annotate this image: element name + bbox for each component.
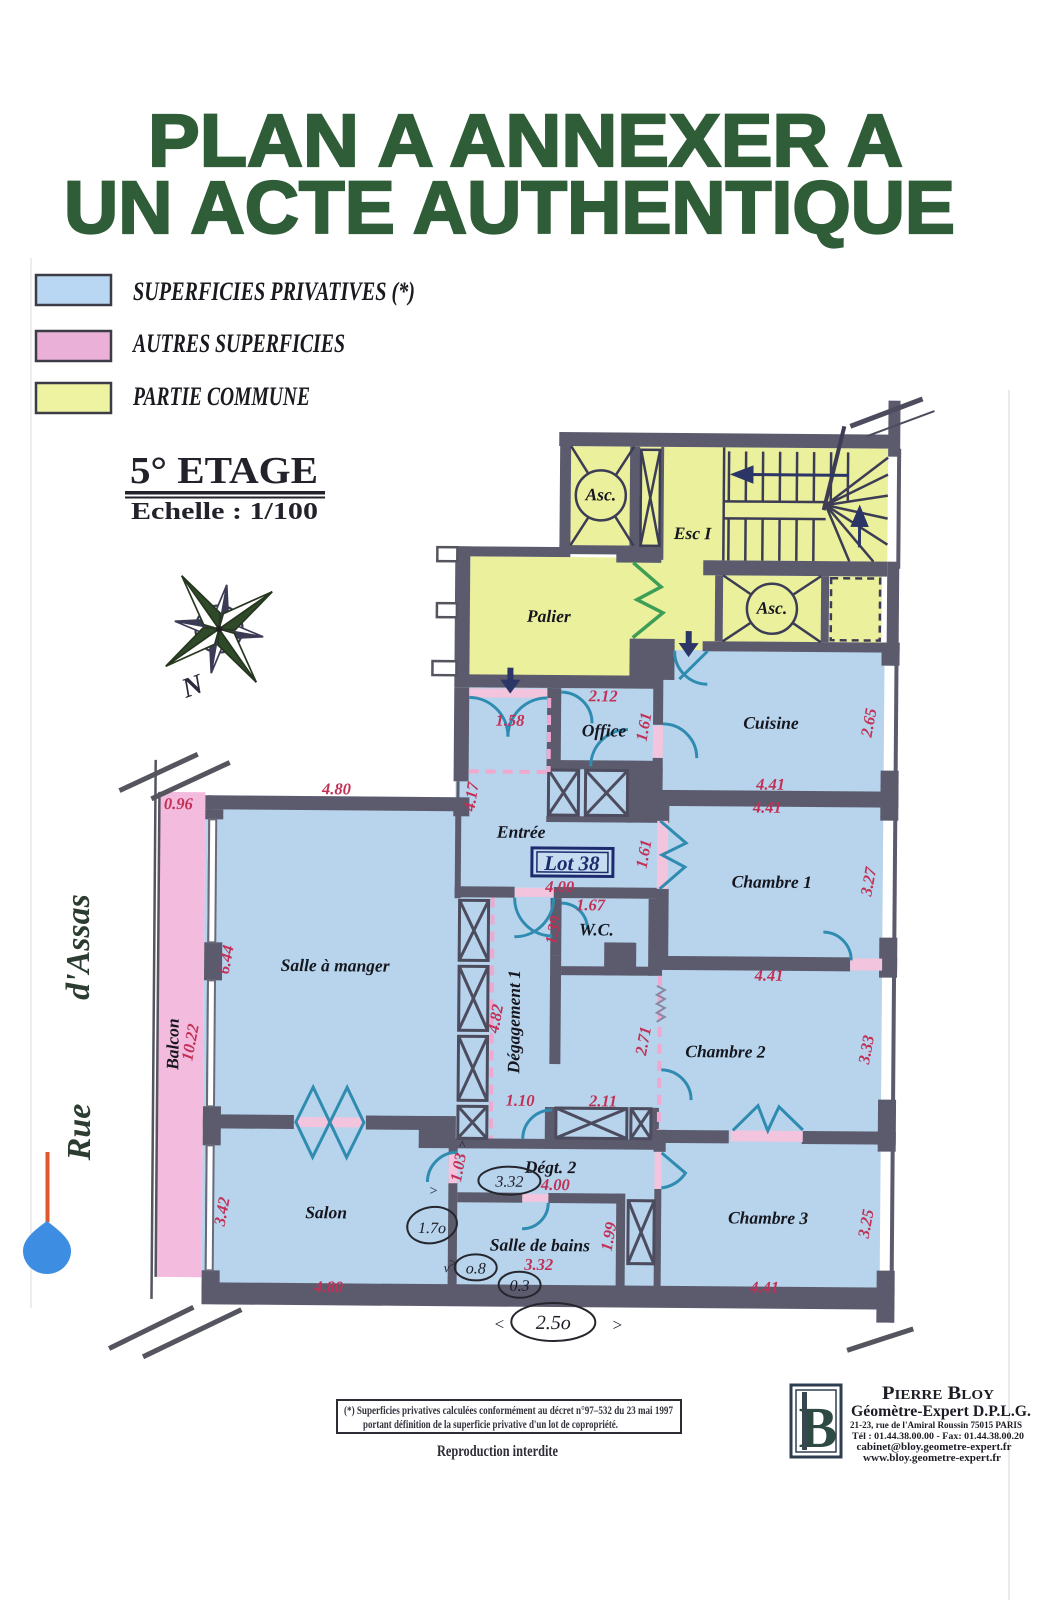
svg-text:Palier: Palier: [526, 606, 571, 626]
svg-text:Reproduction interdite: Reproduction interdite: [437, 1443, 558, 1460]
svg-text:portant définition de la super: portant définition de la superficie priv…: [363, 1419, 618, 1431]
svg-text:4.80: 4.80: [321, 779, 351, 798]
svg-text:>: >: [429, 1184, 439, 1199]
svg-text:UN ACTE AUTHENTIQUE: UN ACTE AUTHENTIQUE: [64, 166, 955, 249]
svg-text:2.12: 2.12: [588, 686, 618, 705]
svg-text:4.41: 4.41: [755, 775, 785, 794]
svg-text:Cuisine: Cuisine: [743, 713, 799, 733]
svg-text:4.00: 4.00: [540, 1175, 570, 1194]
svg-text:>: >: [448, 1255, 457, 1270]
svg-text:4.80: 4.80: [313, 1277, 343, 1296]
svg-text:Asc.: Asc.: [756, 598, 788, 618]
svg-text:Tél : 01.44.38.00.00 - Fax: 01: Tél : 01.44.38.00.00 - Fax: 01.44.38.00.…: [852, 1432, 1024, 1442]
svg-text:Office: Office: [582, 720, 627, 740]
svg-text:Entrée: Entrée: [496, 822, 546, 842]
svg-text:5° ETAGE: 5° ETAGE: [130, 450, 318, 492]
svg-text:Dégagement 1: Dégagement 1: [503, 970, 524, 1075]
svg-text:Esc I: Esc I: [673, 523, 713, 543]
svg-text:>: >: [611, 1315, 623, 1334]
svg-text:Asc.: Asc.: [584, 484, 616, 504]
svg-text:Chambre 3: Chambre 3: [728, 1207, 809, 1228]
svg-text:1.10: 1.10: [506, 1091, 535, 1110]
svg-text:3.32: 3.32: [523, 1255, 553, 1274]
svg-text:21-23, rue de l'Amiral Roussin: 21-23, rue de l'Amiral Roussin 75015 PAR…: [850, 1421, 1022, 1431]
svg-text:2.5o: 2.5o: [536, 1312, 571, 1334]
svg-text:Chambre 1: Chambre 1: [732, 871, 812, 892]
svg-text:1.7o: 1.7o: [418, 1220, 446, 1237]
svg-text:www.bloy.geometre-expert.fr: www.bloy.geometre-expert.fr: [863, 1453, 1001, 1464]
svg-text:4.41: 4.41: [749, 1278, 779, 1297]
svg-text:0.96: 0.96: [164, 794, 194, 813]
svg-text:PARTIE COMMUNE: PARTIE COMMUNE: [132, 382, 310, 411]
svg-text:d'Assas: d'Assas: [60, 894, 97, 1000]
svg-text:(*) Superficies privatives cal: (*) Superficies privatives calculées con…: [344, 1405, 673, 1417]
svg-text:4.41: 4.41: [754, 966, 784, 985]
svg-text:Salle à manger: Salle à manger: [281, 955, 390, 976]
svg-text:Salon: Salon: [305, 1202, 347, 1222]
svg-text:SUPERFICIES PRIVATIVES (*): SUPERFICIES PRIVATIVES (*): [133, 277, 415, 306]
svg-text:o.8: o.8: [466, 1260, 486, 1277]
svg-text:3.32: 3.32: [494, 1174, 523, 1191]
svg-text:W.C.: W.C.: [579, 919, 614, 939]
svg-text:1.67: 1.67: [576, 895, 606, 914]
svg-text:4.00: 4.00: [544, 877, 574, 896]
svg-text:Lot 38: Lot 38: [543, 851, 600, 875]
svg-text:4.41: 4.41: [752, 798, 782, 817]
svg-text:1.58: 1.58: [496, 711, 525, 730]
svg-text:<: <: [493, 1315, 505, 1334]
svg-text:cabinet@bloy.geometre-expert.f: cabinet@bloy.geometre-expert.fr: [857, 1442, 1012, 1453]
svg-text:Géomètre-Expert D.P.L.G.: Géomètre-Expert D.P.L.G.: [851, 1403, 1031, 1420]
svg-text:Salle de bains: Salle de bains: [490, 1235, 590, 1256]
svg-text:2.11: 2.11: [588, 1091, 617, 1110]
svg-text:Chambre 2: Chambre 2: [685, 1041, 766, 1062]
svg-text:AUTRES SUPERFICIES: AUTRES SUPERFICIES: [131, 329, 345, 358]
svg-text:Echelle : 1/100: Echelle : 1/100: [131, 499, 318, 525]
svg-text:0.3: 0.3: [510, 1278, 530, 1295]
svg-text:Rue: Rue: [61, 1104, 98, 1162]
